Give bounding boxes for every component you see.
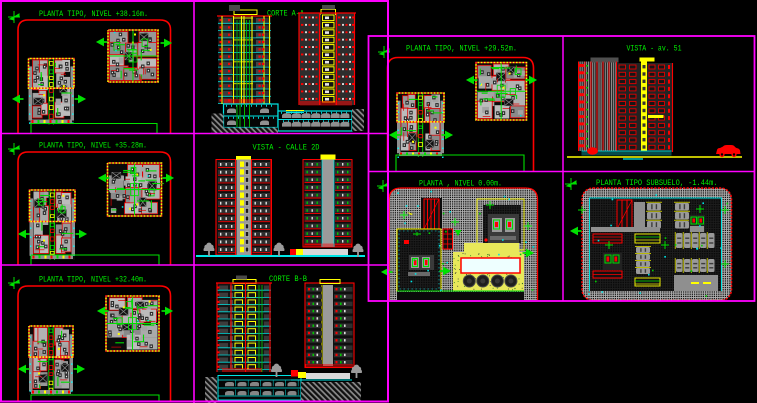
svg-text:CORTE B-B: CORTE B-B: [269, 275, 307, 284]
svg-text:PLANTA , NIVEL 0.00m.: PLANTA , NIVEL 0.00m.: [419, 180, 502, 189]
svg-text:PLANTA TIPO, NIVEL +32.40m.: PLANTA TIPO, NIVEL +32.40m.: [39, 276, 147, 285]
svg-text:VISTA - av. 51: VISTA - av. 51: [627, 45, 682, 54]
svg-text:VISTA - CALLE 2D: VISTA - CALLE 2D: [253, 144, 320, 153]
svg-text:PLANTA TIPO, NIVEL +35.28m.: PLANTA TIPO, NIVEL +35.28m.: [39, 142, 147, 151]
svg-text:PLANTA TIPO SUBSUELO, -1.44m.: PLANTA TIPO SUBSUELO, -1.44m.: [596, 179, 718, 188]
svg-text:PLANTA TIPO, NIVEL +29.52m.: PLANTA TIPO, NIVEL +29.52m.: [406, 45, 517, 54]
svg-text:PLANTA TIPO, NIVEL +38.16m.: PLANTA TIPO, NIVEL +38.16m.: [39, 10, 148, 19]
